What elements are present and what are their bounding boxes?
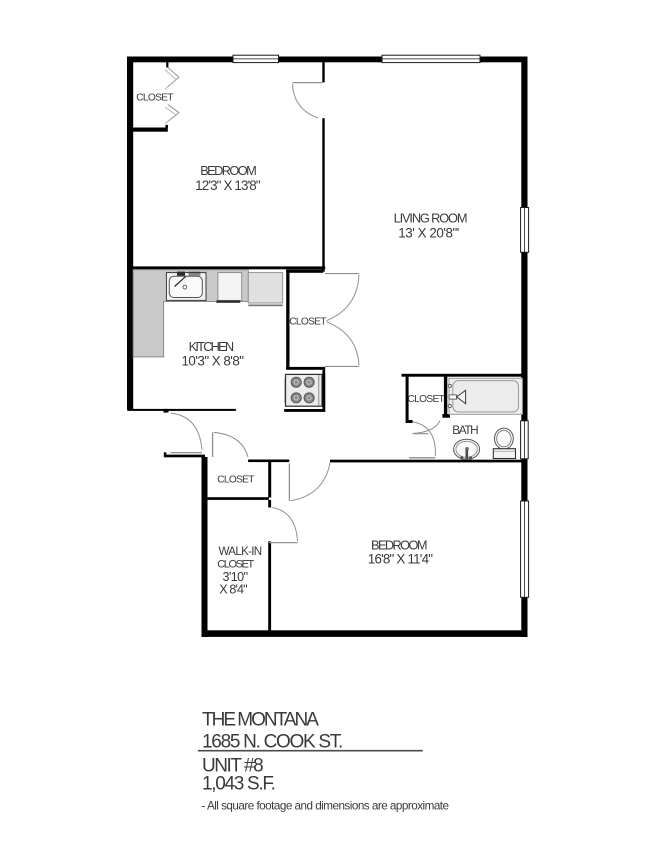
svg-text:CLOSET: CLOSET: [289, 317, 326, 328]
svg-text:BEDROOM: BEDROOM: [200, 163, 256, 178]
svg-text:CLOSET: CLOSET: [217, 475, 254, 486]
svg-text:LIVING ROOM: LIVING ROOM: [394, 210, 467, 225]
svg-text:BEDROOM: BEDROOM: [371, 537, 427, 552]
svg-text:THE MONTANA: THE MONTANA: [202, 710, 319, 731]
svg-text:CLOSET: CLOSET: [136, 93, 173, 104]
svg-text:1685 N. COOK ST.: 1685 N. COOK ST.: [202, 731, 342, 752]
svg-text:X 8'4": X 8'4": [219, 583, 247, 597]
svg-text:CLOSET: CLOSET: [217, 558, 254, 570]
svg-text:KITCHEN: KITCHEN: [189, 339, 234, 354]
svg-text:10'3" X 8'8": 10'3" X 8'8": [182, 353, 245, 368]
svg-text:- All square footage and dimen: - All square footage and dimensions are …: [202, 800, 449, 813]
svg-text:16'8" X 11'4": 16'8" X 11'4": [368, 552, 433, 567]
svg-text:BATH: BATH: [452, 423, 478, 437]
svg-text:12'3" X 13'8": 12'3" X 13'8": [195, 178, 261, 193]
svg-text:CLOSET: CLOSET: [408, 394, 445, 405]
svg-text:13' X 20'8"': 13' X 20'8"': [398, 225, 459, 240]
svg-text:1,043 S.F.: 1,043 S.F.: [202, 774, 275, 795]
svg-text:WALK-IN: WALK-IN: [219, 545, 262, 558]
